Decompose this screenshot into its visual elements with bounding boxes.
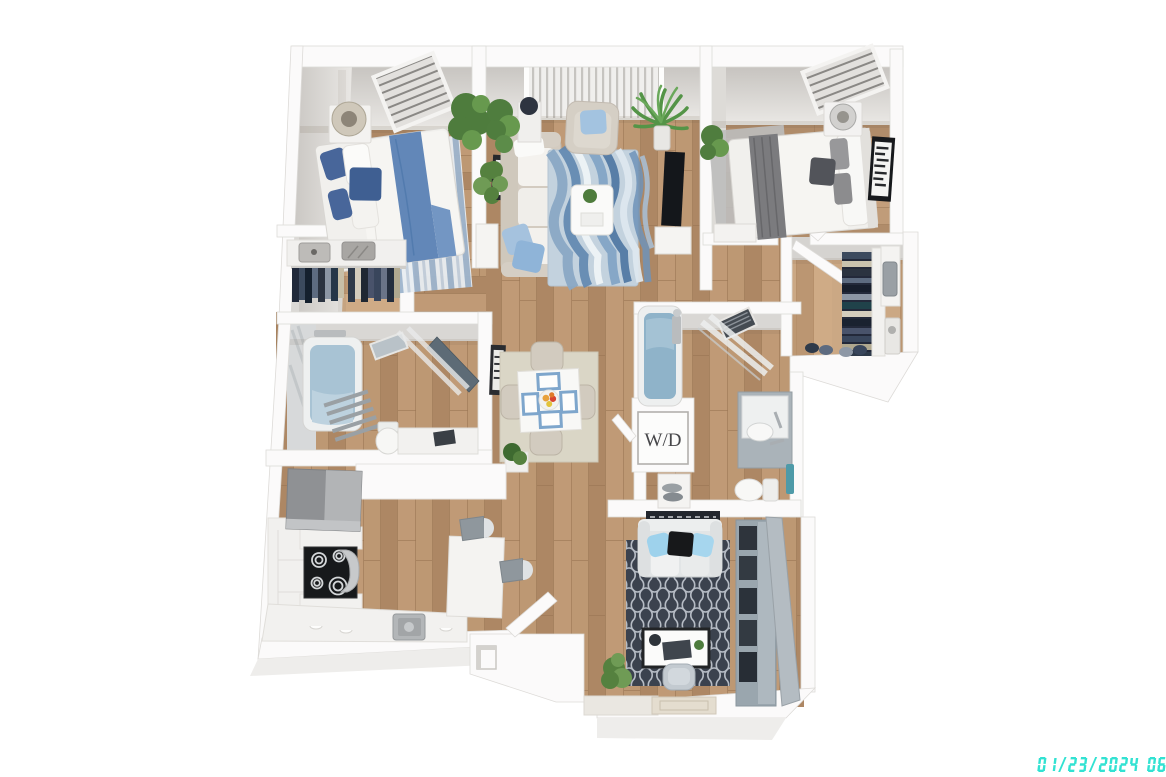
svg-text:W/D: W/D (645, 430, 682, 451)
